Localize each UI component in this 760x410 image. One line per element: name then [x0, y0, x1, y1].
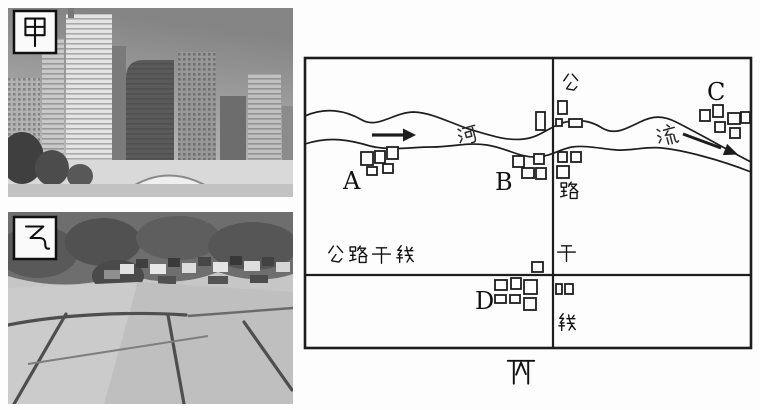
settlement-D-squares: [495, 262, 573, 310]
crossing-squares: [536, 101, 582, 130]
horizontal-road-label: [329, 246, 414, 264]
river-char-liu: [655, 123, 678, 147]
char-gong: [564, 74, 578, 90]
settlement-label-A: A: [342, 167, 361, 195]
settlement-label-B: B: [495, 168, 513, 196]
settlement-A-squares: [361, 147, 398, 175]
settlement-label-C: C: [707, 78, 725, 106]
char-xian: [559, 314, 575, 331]
settlement-squares: [361, 101, 750, 310]
paddy-fields: [8, 282, 293, 404]
settlement-map: A B C D: [300, 50, 756, 395]
photo-city: [8, 8, 293, 197]
photo-village: [8, 212, 293, 404]
char-lu: [561, 182, 578, 198]
figure: A B C D: [0, 0, 760, 410]
photo-label-jia: [14, 11, 56, 53]
flow-arrow-west: [372, 129, 416, 142]
char-gan: [558, 246, 576, 262]
settlement-C-squares: [700, 105, 750, 138]
settlement-label-D: D: [475, 287, 494, 315]
photo-label-yi: [14, 217, 56, 259]
map-caption-bing: [508, 361, 534, 384]
